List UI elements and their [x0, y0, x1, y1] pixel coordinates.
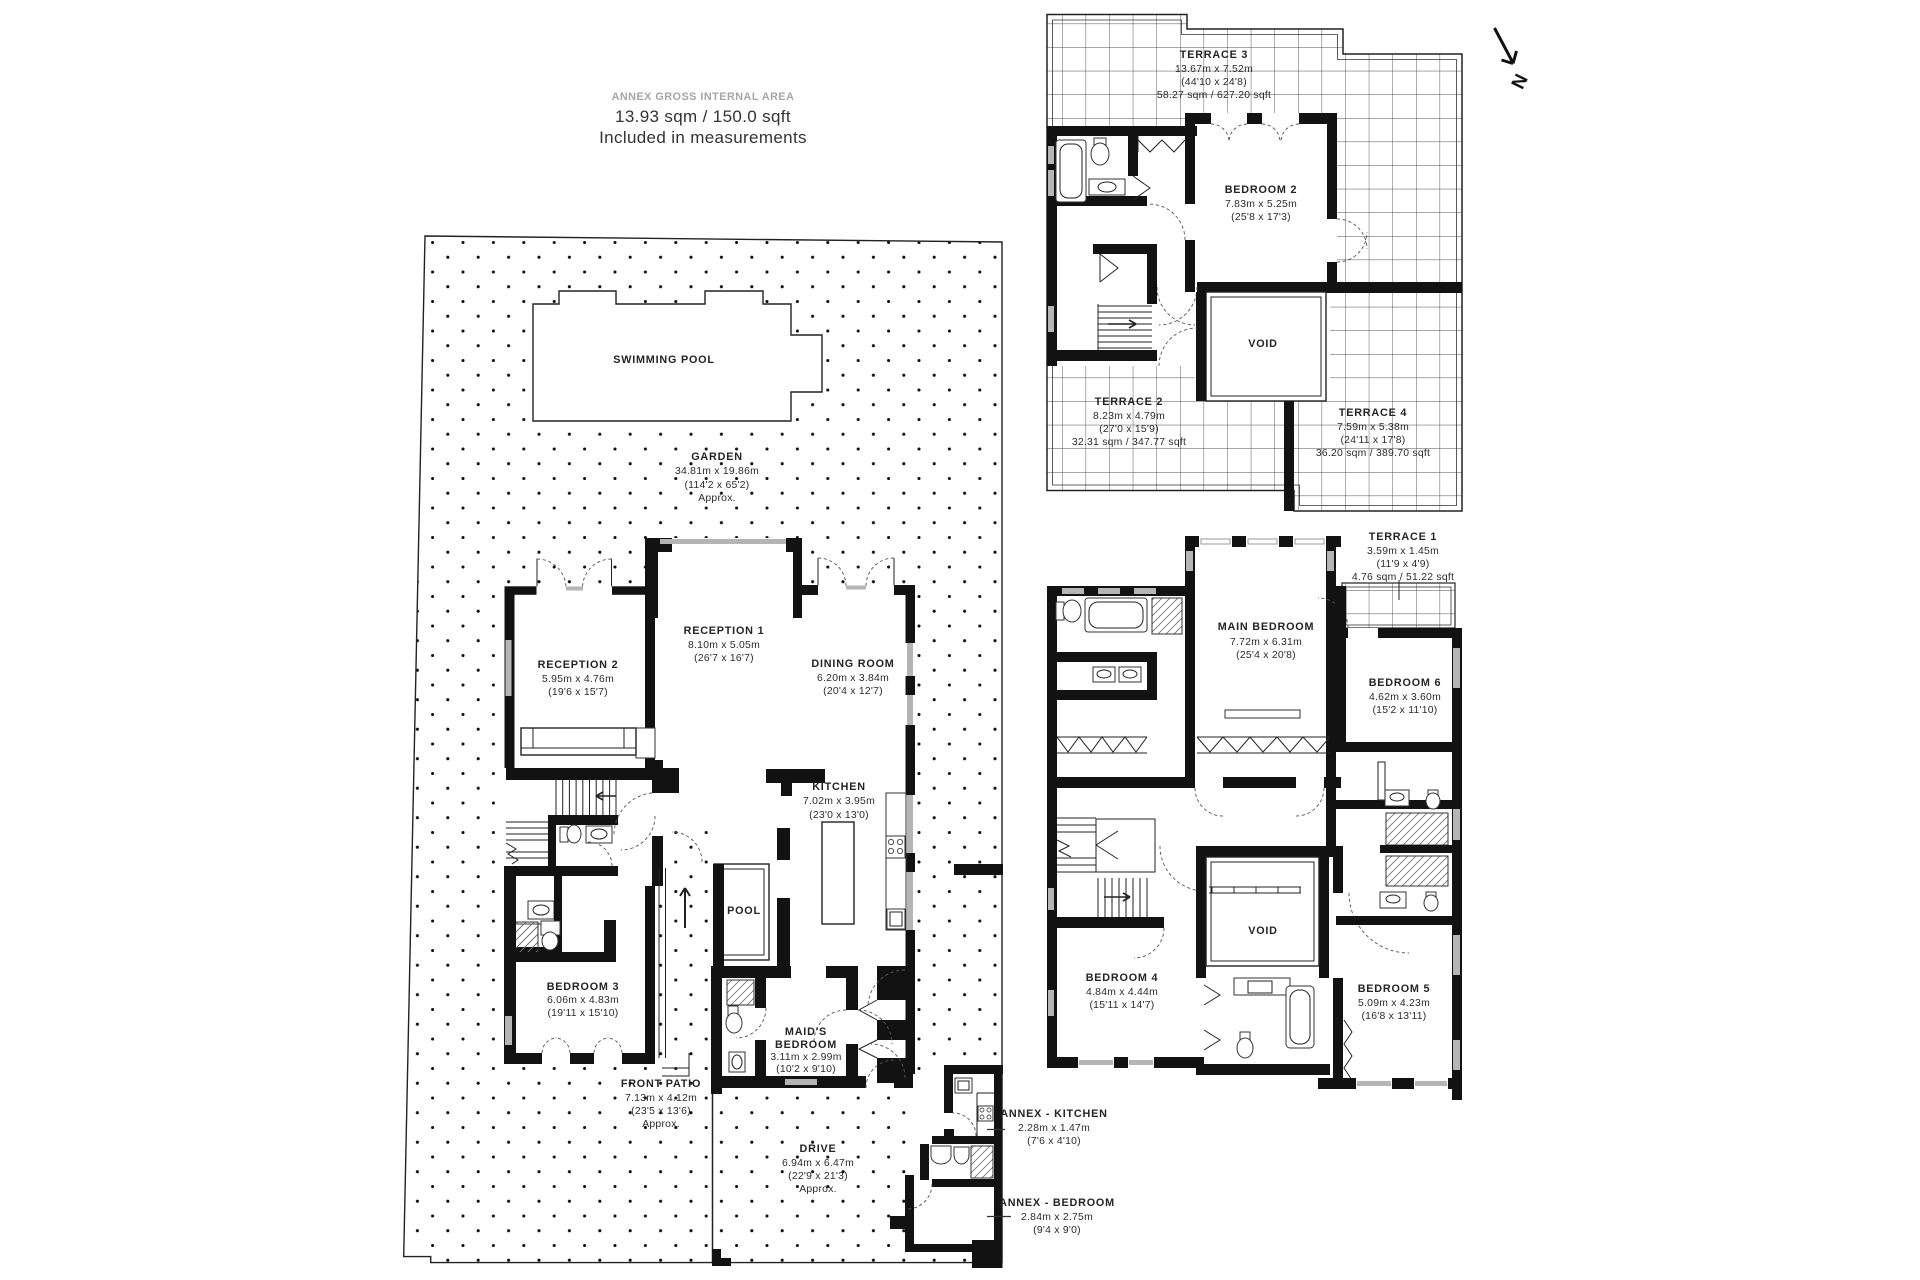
svg-text:MAIN BEDROOM: MAIN BEDROOM	[1218, 621, 1315, 633]
svg-text:7.59m x 5.38m: 7.59m x 5.38m	[1337, 422, 1409, 433]
svg-text:(27'0 x 15'9): (27'0 x 15'9)	[1099, 424, 1159, 435]
svg-text:ANNEX - KITCHEN: ANNEX - KITCHEN	[1000, 1108, 1107, 1120]
svg-text:Approx.: Approx.	[698, 493, 736, 504]
svg-text:3.11m x 2.99m: 3.11m x 2.99m	[770, 1052, 841, 1063]
svg-text:7.02m x 3.95m: 7.02m x 3.95m	[803, 796, 875, 807]
svg-text:(9'4 x 9'0): (9'4 x 9'0)	[1033, 1225, 1081, 1236]
svg-text:SWIMMING POOL: SWIMMING POOL	[613, 354, 715, 366]
svg-text:7.13m x 4.12m: 7.13m x 4.12m	[625, 1093, 697, 1104]
svg-text:8.23m x 4.79m: 8.23m x 4.79m	[1093, 411, 1165, 422]
svg-text:(25'4 x 20'8): (25'4 x 20'8)	[1236, 650, 1296, 661]
svg-text:5.95m x 4.76m: 5.95m x 4.76m	[542, 674, 614, 685]
svg-text:TERRACE 2: TERRACE 2	[1095, 396, 1163, 408]
svg-text:(20'4 x 12'7): (20'4 x 12'7)	[823, 686, 883, 697]
svg-text:BEDROOM 4: BEDROOM 4	[1086, 972, 1159, 984]
svg-text:(26'7 x 16'7): (26'7 x 16'7)	[694, 653, 754, 664]
svg-text:BEDROOM 5: BEDROOM 5	[1358, 983, 1431, 995]
svg-text:(114'2 x 65'2): (114'2 x 65'2)	[684, 480, 749, 491]
svg-text:(7'6 x 4'10): (7'6 x 4'10)	[1027, 1136, 1081, 1147]
svg-text:7.83m x 5.25m: 7.83m x 5.25m	[1225, 199, 1297, 210]
svg-text:TERRACE 4: TERRACE 4	[1339, 407, 1407, 419]
svg-text:Approx.: Approx.	[642, 1119, 680, 1130]
svg-text:BEDROOM 6: BEDROOM 6	[1369, 677, 1442, 689]
svg-text:(15'2 x 11'10): (15'2 x 11'10)	[1372, 705, 1437, 716]
svg-text:(44'10 x 24'8): (44'10 x 24'8)	[1181, 77, 1247, 88]
svg-text:RECEPTION 2: RECEPTION 2	[538, 659, 619, 671]
svg-text:13.93 sqm / 150.0 sqft: 13.93 sqm / 150.0 sqft	[615, 107, 791, 126]
svg-text:Approx.: Approx.	[799, 1184, 837, 1195]
svg-text:(10'2 x 9'10): (10'2 x 9'10)	[776, 1064, 836, 1075]
svg-text:(24'11 x 17'8): (24'11 x 17'8)	[1340, 435, 1405, 446]
svg-text:(25'8 x 17'3): (25'8 x 17'3)	[1231, 212, 1291, 223]
svg-text:RECEPTION 1: RECEPTION 1	[684, 625, 765, 637]
svg-text:2.28m x 1.47m: 2.28m x 1.47m	[1018, 1123, 1090, 1134]
svg-text:8.10m x 5.05m: 8.10m x 5.05m	[688, 640, 760, 651]
svg-text:6.06m x 4.83m: 6.06m x 4.83m	[547, 995, 619, 1006]
svg-text:DRIVE: DRIVE	[800, 1143, 837, 1155]
svg-text:6.20m x 3.84m: 6.20m x 3.84m	[817, 673, 889, 684]
svg-text:34.81m x 19.86m: 34.81m x 19.86m	[675, 466, 759, 477]
svg-text:MAID'S: MAID'S	[785, 1026, 827, 1038]
svg-text:36.20 sqm / 389.70 sqft: 36.20 sqm / 389.70 sqft	[1316, 448, 1430, 459]
svg-text:ANNEX GROSS INTERNAL AREA: ANNEX GROSS INTERNAL AREA	[612, 91, 795, 103]
svg-text:(15'11 x 14'7): (15'11 x 14'7)	[1089, 1000, 1154, 1011]
svg-text:32.31 sqm / 347.77 sqft: 32.31 sqm / 347.77 sqft	[1072, 437, 1186, 448]
svg-text:GARDEN: GARDEN	[691, 451, 743, 463]
svg-text:(19'11 x 15'10): (19'11 x 15'10)	[547, 1008, 618, 1019]
svg-text:ANNEX - BEDROOM: ANNEX - BEDROOM	[999, 1197, 1115, 1209]
svg-text:(23'0 x 13'0): (23'0 x 13'0)	[809, 810, 869, 821]
svg-text:(19'6 x 15'7): (19'6 x 15'7)	[548, 687, 608, 698]
svg-text:VOID: VOID	[1248, 338, 1278, 350]
svg-text:KITCHEN: KITCHEN	[812, 781, 866, 793]
svg-text:TERRACE 1: TERRACE 1	[1369, 531, 1437, 543]
svg-text:(16'8 x 13'11): (16'8 x 13'11)	[1361, 1011, 1426, 1022]
svg-text:VOID: VOID	[1248, 925, 1278, 937]
svg-text:(22'9 x 21'3): (22'9 x 21'3)	[788, 1171, 848, 1182]
svg-text:Included in measurements: Included in measurements	[599, 128, 807, 147]
svg-text:13.67m x 7.52m: 13.67m x 7.52m	[1175, 64, 1253, 75]
svg-text:BEDROOM: BEDROOM	[775, 1039, 837, 1051]
svg-text:TERRACE 3: TERRACE 3	[1180, 49, 1248, 61]
svg-text:FRONT PATIO: FRONT PATIO	[621, 1078, 701, 1090]
svg-text:58.27 sqm / 627.20 sqft: 58.27 sqm / 627.20 sqft	[1157, 90, 1271, 101]
svg-text:4.62m x 3.60m: 4.62m x 3.60m	[1369, 692, 1441, 703]
svg-text:(11'9 x 4'9): (11'9 x 4'9)	[1377, 559, 1430, 570]
svg-text:5.09m x 4.23m: 5.09m x 4.23m	[1358, 998, 1430, 1009]
svg-text:4.76 sqm / 51.22 sqft: 4.76 sqm / 51.22 sqft	[1352, 572, 1454, 583]
svg-text:3.59m x 1.45m: 3.59m x 1.45m	[1367, 546, 1439, 557]
svg-text:POOL: POOL	[727, 905, 761, 917]
svg-text:7.72m x 6.31m: 7.72m x 6.31m	[1230, 637, 1302, 648]
svg-text:4.84m x 4.44m: 4.84m x 4.44m	[1086, 987, 1158, 998]
svg-text:2.84m x 2.75m: 2.84m x 2.75m	[1021, 1212, 1093, 1223]
svg-text:DINING ROOM: DINING ROOM	[811, 658, 894, 670]
svg-text:BEDROOM 3: BEDROOM 3	[547, 981, 620, 993]
svg-text:(23'5 x 13'6): (23'5 x 13'6)	[631, 1106, 691, 1117]
svg-text:BEDROOM 2: BEDROOM 2	[1225, 184, 1298, 196]
svg-text:6.94m x 6.47m: 6.94m x 6.47m	[782, 1158, 854, 1169]
